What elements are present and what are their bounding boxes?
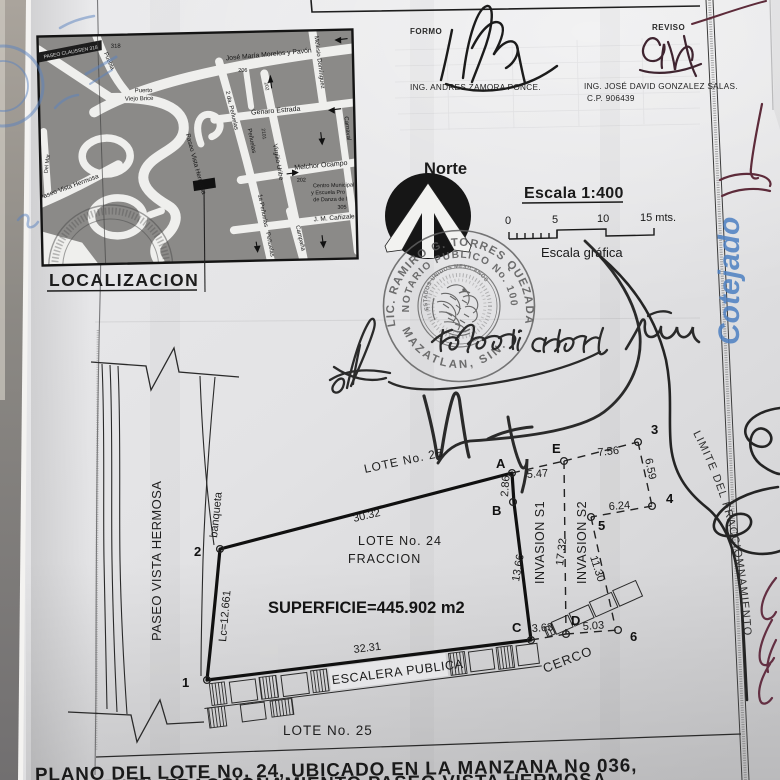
svg-text:FRACCION: FRACCION: [348, 552, 421, 566]
svg-text:10: 10: [597, 213, 609, 225]
svg-text:Cotejado: Cotejado: [713, 217, 746, 345]
svg-text:Escala 1:400: Escala 1:400: [524, 185, 624, 202]
svg-text:6: 6: [630, 629, 637, 644]
svg-text:15 mts.: 15 mts.: [640, 212, 676, 224]
svg-text:C: C: [512, 620, 522, 635]
svg-text:FORMO: FORMO: [410, 27, 442, 36]
svg-text:INVASION S1: INVASION S1: [533, 501, 547, 584]
svg-text:7.56: 7.56: [597, 445, 620, 459]
svg-text:2.86: 2.86: [499, 475, 512, 497]
svg-text:6.24: 6.24: [608, 500, 630, 513]
svg-text:LOTE No. 24: LOTE No. 24: [358, 534, 442, 548]
svg-text:5.47: 5.47: [526, 468, 548, 481]
svg-text:2: 2: [194, 544, 201, 559]
svg-text:PASEO VISTA HERMOSA: PASEO VISTA HERMOSA: [149, 481, 164, 641]
svg-text:D: D: [571, 613, 580, 628]
svg-text:INVASION S2: INVASION S2: [575, 501, 589, 584]
svg-text:206: 206: [238, 68, 247, 74]
svg-text:305: 305: [337, 205, 346, 211]
svg-text:5.03: 5.03: [582, 620, 604, 633]
svg-text:Viejo Brice: Viejo Brice: [125, 96, 154, 103]
svg-text:y Escuela Pro: y Escuela Pro: [311, 190, 345, 197]
svg-text:5: 5: [598, 518, 605, 533]
svg-text:202: 202: [297, 178, 306, 184]
svg-text:E: E: [552, 441, 561, 456]
svg-text:Escala gráfica: Escala gráfica: [541, 245, 623, 260]
svg-text:0: 0: [505, 215, 511, 227]
svg-text:1: 1: [182, 675, 189, 690]
svg-text:ING. JOSÉ DAVID GONZALEZ S: ING. JOSÉ DAVID GONZALEZ SALAS.: [584, 81, 738, 91]
svg-text:3: 3: [651, 422, 658, 437]
svg-text:SUPERFICIE=445.902 m2: SUPERFICIE=445.902 m2: [268, 599, 465, 617]
svg-text:LOCALIZACION: LOCALIZACION: [49, 270, 199, 290]
svg-text:Puerto: Puerto: [135, 88, 153, 94]
svg-text:LOTE No. 25: LOTE No. 25: [283, 723, 373, 738]
svg-text:4: 4: [666, 491, 674, 506]
svg-text:3.63: 3.63: [531, 622, 553, 635]
svg-text:A: A: [496, 456, 506, 471]
svg-text:B: B: [492, 503, 501, 518]
svg-text:5: 5: [552, 214, 558, 226]
svg-text:318: 318: [111, 44, 122, 50]
svg-text:REVISO: REVISO: [652, 23, 685, 32]
svg-text:de Danza de l: de Danza de l: [313, 197, 347, 204]
svg-text:C.P. 906439: C.P. 906439: [587, 94, 635, 103]
svg-text:Centro Municipal: Centro Municipal: [313, 182, 354, 189]
